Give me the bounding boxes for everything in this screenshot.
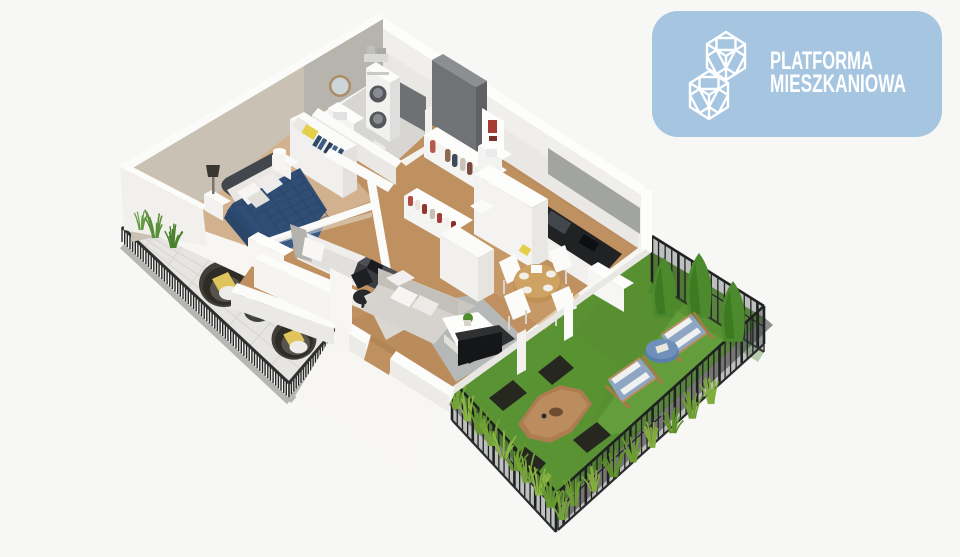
svg-text:MIESZKANIOWA: MIESZKANIOWA	[770, 70, 906, 98]
